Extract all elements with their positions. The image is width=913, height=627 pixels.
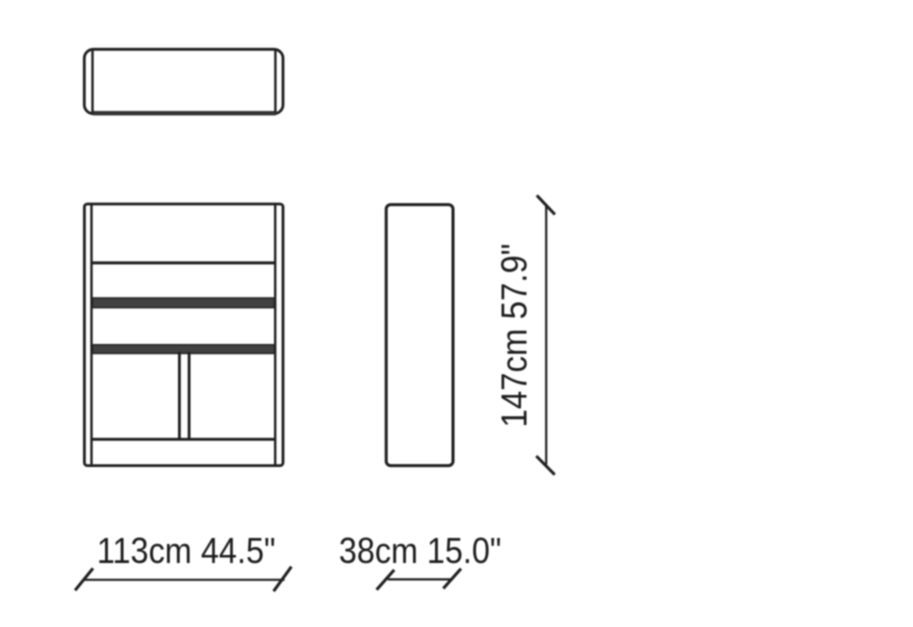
svg-text:38cm 15.0": 38cm 15.0" <box>339 530 502 571</box>
svg-text:113cm 44.5": 113cm 44.5" <box>97 530 276 571</box>
svg-text:147cm 57.9": 147cm 57.9" <box>494 244 535 428</box>
